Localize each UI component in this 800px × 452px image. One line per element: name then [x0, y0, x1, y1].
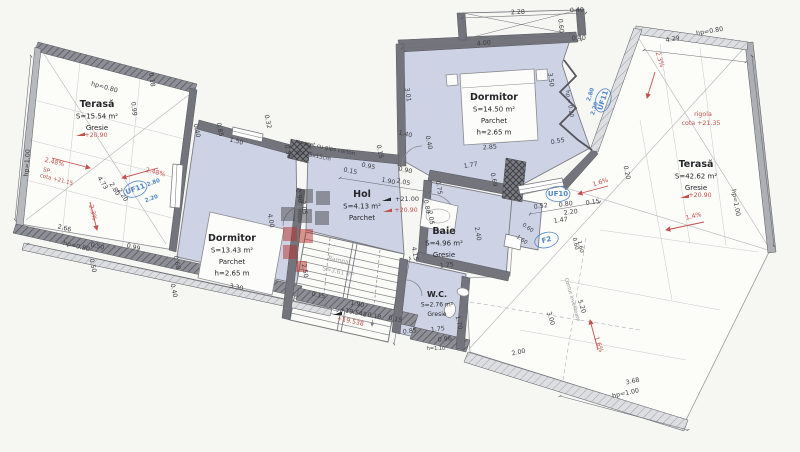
dimension-label: 4.00 [477, 39, 492, 47]
dimension-label: 0.99 [129, 102, 137, 117]
room-name-label: W.C. [427, 290, 447, 299]
room-name-label: Terasă [679, 159, 714, 170]
room-finish-label: Gresie [86, 124, 108, 132]
dimension-label: 4.15 [410, 246, 419, 261]
room-name-label: Dormitor [470, 92, 518, 103]
dimension-label: 0.40 [570, 7, 584, 15]
room-area-label: S=2.76 m² [421, 302, 454, 309]
room-name-label: Terasă [80, 99, 115, 110]
watermark-block [316, 191, 330, 205]
room-finish-label: Gresie [433, 251, 455, 259]
dimension-label: 1.75 [431, 325, 446, 333]
room-name-label: Hol [353, 189, 371, 200]
floor-plan-canvas: TerasăS=15.54 m²GresieDormitorS=13.43 m²… [0, 0, 800, 452]
pillar-bathroom [502, 158, 526, 202]
dimension-label: 0.50 [88, 258, 98, 273]
dimension-label: 2.85 [483, 144, 497, 152]
window-tag-label: 2.80 [586, 87, 596, 102]
room-area-label: S=13.43 m² [211, 247, 253, 255]
wall-bedroom-top-left [396, 44, 406, 166]
dimension-label: 0.40 [192, 123, 202, 138]
room-height-label: h=2.65 m [477, 129, 512, 137]
niche-stub-left [457, 13, 467, 40]
red-annotation-label: rigola [694, 111, 712, 118]
room-finish-label: Gresie [427, 311, 446, 318]
room-finish-label: Parchet [481, 117, 508, 125]
room-area-label: S=15.54 m² [76, 113, 118, 121]
red-annotation-label: +20.90 [84, 132, 107, 139]
dimension-label: 0.40 [572, 35, 586, 43]
watermark-block [281, 207, 295, 221]
dimension-label: h=1.10 [427, 346, 446, 352]
room-finish-label: Gresie [685, 184, 707, 192]
dimension-label: 0.60 [556, 19, 564, 34]
dimension-label: 0.85 [403, 327, 418, 335]
room-finish-label: Parchet [219, 258, 246, 266]
room-area-label: S=14.50 m² [473, 106, 515, 114]
room-area-label: S=42.62 m² [675, 173, 717, 181]
dimension-label: 0.32 [263, 114, 273, 129]
dimension-label: +21.00 [395, 195, 419, 203]
red-annotation-label: +20.90 [688, 192, 711, 199]
room-area-label: S=4.96 m² [425, 240, 463, 248]
room-name-label: Dormitor [208, 233, 256, 244]
room-height-label: h=2.65 m [215, 270, 250, 278]
red-annotation-label: +20.90 [394, 207, 417, 214]
room-name-label: Baie [432, 226, 455, 237]
dimension-label: hp=0.80 [696, 26, 724, 38]
dimension-label: 1.75 [440, 261, 455, 269]
nightstand [446, 74, 458, 86]
room-finish-label: Parchet [349, 214, 376, 222]
window-tag-label: UF10 [548, 190, 568, 198]
floor-plan-drawing: TerasăS=15.54 m²GresieDormitorS=13.43 m²… [0, 0, 800, 452]
dimension-label: 0.40 [169, 283, 179, 298]
watermark-block [283, 227, 297, 241]
watermark-block [283, 245, 297, 259]
dimension-label: 2.28 [511, 9, 525, 17]
dimension-label: 0.96 [438, 335, 453, 343]
watermark-block [299, 229, 313, 243]
nightstand [536, 69, 548, 81]
red-annotation-label: cota +21.35 [682, 120, 721, 127]
room-area-label: S=4.13 m² [343, 203, 381, 211]
watermark-block [315, 211, 329, 225]
dimension-label: 0.90 [398, 166, 413, 176]
